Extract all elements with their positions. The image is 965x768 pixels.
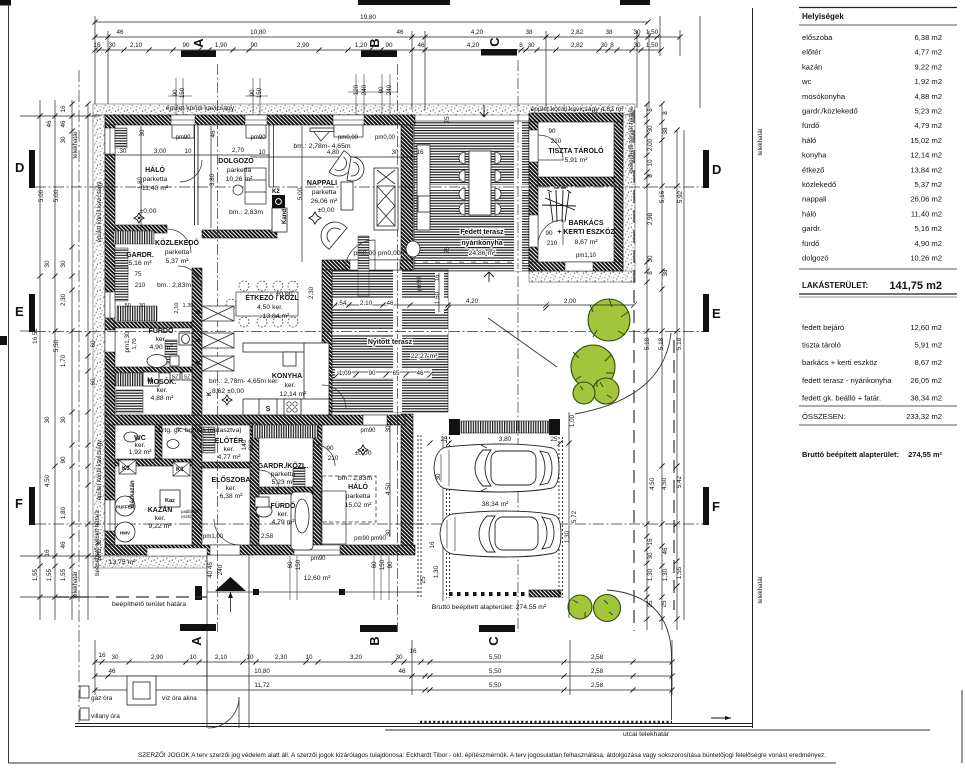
svg-text:2,58: 2,58 (591, 668, 604, 675)
svg-text:tiszta tároló: tiszta tároló (802, 341, 841, 350)
svg-text:240: 240 (361, 84, 368, 95)
svg-text:90: 90 (172, 89, 179, 97)
svg-text:pm1,30: pm1,30 (96, 539, 103, 561)
svg-text:K: K (196, 309, 202, 314)
svg-text:10,26 m2: 10,26 m2 (910, 254, 942, 263)
svg-text:HÁLÓ: HÁLÓ (145, 165, 165, 174)
svg-text:ker.: ker. (278, 511, 289, 518)
svg-text:30: 30 (395, 654, 403, 661)
svg-text:1,30: 1,30 (647, 568, 654, 581)
svg-text:BARKÁCS: BARKÁCS (569, 218, 604, 227)
svg-text:10,80: 10,80 (254, 668, 270, 675)
svg-text:2,30: 2,30 (60, 293, 67, 306)
svg-text:8: 8 (647, 174, 654, 178)
svg-text:2,10: 2,10 (174, 303, 180, 314)
svg-text:SZERZŐI JOGOK A terv szerzői j: SZERZŐI JOGOK A terv szerzői jog védelem… (138, 750, 826, 759)
svg-text:12,60 m²: 12,60 m² (304, 575, 332, 582)
svg-text:2,58: 2,58 (261, 533, 274, 540)
svg-text:.30: .30 (118, 148, 127, 155)
svg-text:MOSÓK.: MOSÓK. (148, 377, 176, 386)
svg-text:épület körüli kavicságy: épület körüli kavicságy (97, 182, 103, 242)
svg-text:8: 8 (662, 111, 669, 115)
svg-text:előszoba: előszoba (802, 33, 833, 42)
svg-text:ELŐTÉR: ELŐTÉR (215, 436, 243, 445)
svg-text:pm90 pm90: pm90 pm90 (354, 536, 386, 542)
svg-text:26,06 m2: 26,06 m2 (910, 195, 942, 204)
svg-text:46: 46 (662, 547, 669, 555)
svg-text:4,88 m²: 4,88 m² (150, 395, 174, 402)
svg-text:30: 30 (391, 149, 399, 156)
svg-text:30: 30 (385, 425, 392, 433)
svg-text:4,88 m2: 4,88 m2 (915, 92, 942, 101)
svg-text:nappali: nappali (802, 195, 827, 204)
svg-text:5,50: 5,50 (489, 654, 502, 661)
svg-text:C: C (487, 37, 502, 47)
svg-text:SZ: SZ (184, 375, 190, 381)
svg-text:90: 90 (249, 89, 256, 97)
svg-text:5,92: 5,92 (677, 190, 684, 203)
svg-text:WC: WC (134, 435, 146, 442)
svg-text:K: K (196, 360, 202, 365)
svg-text:16: 16 (93, 42, 101, 49)
svg-text:Gázkazán: Gázkazán (130, 480, 136, 508)
svg-text:2,98: 2,98 (647, 212, 654, 225)
svg-text:telekhatár: telekhatár (72, 571, 79, 598)
svg-text:11,40 m²: 11,40 m² (142, 185, 169, 192)
svg-text:pm0,00: pm0,00 (375, 135, 396, 141)
svg-text:3,80: 3,80 (209, 173, 216, 186)
svg-text:5,50: 5,50 (53, 339, 60, 352)
svg-text:1,30: 1,30 (433, 565, 440, 578)
svg-text:E: E (15, 304, 24, 319)
svg-text:12,14 m2: 12,14 m2 (910, 151, 942, 160)
svg-text:60: 60 (90, 378, 97, 386)
svg-text:D: D (15, 160, 24, 175)
svg-text:90: 90 (60, 456, 67, 464)
svg-text:fedett bejáró: fedett bejáró (802, 323, 844, 332)
svg-text:3,80: 3,80 (499, 436, 512, 443)
svg-text:Kaz: Kaz (165, 498, 175, 504)
svg-text:parketta: parketta (227, 167, 252, 174)
svg-text:141,75 m2: 141,75 m2 (889, 280, 942, 292)
svg-text:5,16: 5,16 (659, 190, 666, 203)
svg-text:6,38 m2: 6,38 m2 (915, 33, 942, 42)
svg-text:13,84 m²: 13,84 m² (263, 313, 291, 320)
svg-text:8,67 m²: 8,67 m² (574, 239, 598, 246)
svg-text:pm1,00: pm1,00 (203, 534, 224, 540)
svg-text:5,16 m2: 5,16 m2 (915, 224, 942, 233)
svg-text:1,60: 1,60 (434, 291, 441, 304)
svg-text:pm90: pm90 (175, 135, 191, 141)
svg-text:38,34 m2: 38,34 m2 (910, 393, 942, 402)
svg-text:pm1,10: pm1,10 (576, 253, 597, 259)
svg-text:16: 16 (416, 149, 424, 156)
svg-text:ker.: ker. (157, 387, 168, 394)
svg-text:38: 38 (525, 29, 533, 36)
svg-text:25: 25 (550, 436, 558, 443)
svg-text:2,00: 2,00 (564, 298, 577, 305)
svg-text:8: 8 (647, 108, 654, 112)
svg-text:,50: ,50 (123, 303, 131, 309)
svg-text:90: 90 (326, 445, 334, 452)
svg-text:10,80: 10,80 (250, 29, 266, 36)
svg-text:5,37 m2: 5,37 m2 (915, 180, 942, 189)
svg-text:épület körüli kavicságy: épület körüli kavicságy (166, 105, 235, 112)
svg-text:4,50: 4,50 (649, 477, 656, 490)
svg-text:5,91 m2: 5,91 m2 (915, 341, 942, 350)
svg-text:pm1,30: pm1,30 (124, 331, 131, 353)
svg-text:26,06 m²: 26,06 m² (311, 198, 339, 205)
svg-text:2,10: 2,10 (215, 654, 228, 661)
svg-text:30: 30 (60, 416, 67, 424)
svg-text:120: 120 (353, 84, 360, 95)
svg-text:háló: háló (802, 209, 816, 218)
svg-text:16: 16 (44, 549, 51, 557)
svg-text:5,50: 5,50 (489, 682, 502, 689)
svg-text:D: D (712, 162, 721, 177)
svg-text:HMV: HMV (120, 531, 131, 536)
svg-text:2,00: 2,00 (647, 138, 654, 151)
svg-text:1,80: 1,80 (137, 176, 144, 189)
svg-text:16: 16 (434, 274, 441, 282)
svg-text:6,38 m²: 6,38 m² (219, 493, 243, 500)
svg-text:Kand: Kand (282, 209, 288, 224)
svg-text:10,26 m²: 10,26 m² (226, 176, 254, 183)
svg-text:46: 46 (210, 130, 217, 138)
svg-text:16: 16 (60, 105, 67, 113)
svg-text:gardr./közlekedő: gardr./közlekedő (802, 107, 858, 116)
svg-text:Fedett terasz: Fedett terasz (460, 229, 504, 236)
svg-text:4,80: 4,80 (327, 149, 340, 156)
svg-text:1,92 m2: 1,92 m2 (915, 77, 942, 86)
svg-text:LAKÁSTERÜLET:: LAKÁSTERÜLET: (802, 281, 868, 290)
svg-text:65: 65 (392, 370, 400, 377)
svg-text:3,00: 3,00 (154, 148, 167, 155)
svg-text:12,60 m2: 12,60 m2 (910, 323, 942, 332)
svg-text:Bruttó beépített alapterület:: Bruttó beépített alapterület: (802, 450, 899, 459)
svg-text:parketta: parketta (312, 189, 337, 196)
svg-text:10: 10 (305, 654, 313, 661)
svg-text:46: 46 (396, 29, 404, 36)
svg-text:90: 90 (378, 86, 385, 94)
svg-text:közlekedő: közlekedő (802, 180, 836, 189)
svg-text:ker.: ker. (135, 442, 146, 449)
svg-text:pm0,00: pm0,00 (338, 135, 359, 141)
svg-text:fedett terasz - nyárikonyha: fedett terasz - nyárikonyha (802, 376, 892, 385)
svg-text:30: 30 (633, 29, 641, 36)
svg-text:25: 25 (440, 436, 448, 443)
svg-text:4,50: 4,50 (385, 482, 392, 495)
svg-text:.54: .54 (338, 300, 347, 307)
svg-text:1,90: 1,90 (215, 42, 228, 49)
svg-text:dolgozó: dolgozó (802, 254, 829, 263)
svg-text:90: 90 (387, 561, 394, 569)
svg-text:4,50 ker.: 4,50 ker. (257, 304, 283, 311)
svg-text:DOLGOZÓ: DOLGOZÓ (218, 156, 254, 165)
svg-text:46: 46 (417, 42, 425, 49)
svg-text:2,70: 2,70 (232, 147, 245, 154)
svg-text:mosókonyha: mosókonyha (802, 92, 846, 101)
svg-text:wc: wc (801, 77, 811, 86)
svg-text:2,58: 2,58 (591, 654, 604, 661)
svg-text:osztó: osztó (181, 514, 192, 519)
svg-text:1,92 m²: 1,92 m² (128, 449, 152, 456)
svg-text:B: B (367, 38, 382, 47)
svg-text:K3: K3 (122, 466, 130, 472)
svg-text:+ KERTI ESZKÖZ: + KERTI ESZKÖZ (557, 227, 615, 236)
svg-text:1,55: 1,55 (32, 568, 39, 581)
svg-text:1,09: 1,09 (339, 370, 352, 377)
svg-text:5,23 m2: 5,23 m2 (915, 107, 942, 116)
svg-text:4,50: 4,50 (661, 477, 668, 490)
svg-text:bm.: 2,78m- 4,65m: bm.: 2,78m- 4,65m (293, 143, 350, 150)
svg-text:barkács + kerti eszköz: barkács + kerti eszköz (802, 358, 878, 367)
svg-text:1,70: 1,70 (60, 354, 67, 367)
svg-text:épület körüli kavicságy: épület körüli kavicságy (97, 440, 103, 500)
svg-text:30: 30 (139, 129, 146, 137)
svg-text:A: A (191, 38, 206, 48)
svg-text:210: 210 (135, 282, 146, 289)
svg-text:8: 8 (610, 42, 614, 49)
svg-text:19,80: 19,80 (360, 14, 376, 21)
svg-text:10: 10 (189, 654, 197, 661)
svg-text:5,16 m²: 5,16 m² (128, 260, 152, 267)
svg-text:KÖZLEKEDŐ: KÖZLEKEDŐ (155, 238, 200, 247)
svg-text:60: 60 (287, 561, 294, 569)
svg-text:4,90 m2: 4,90 m2 (915, 239, 942, 248)
svg-text:F: F (15, 496, 23, 511)
svg-text:bm.: 2,78m- 4,65m ker.: bm.: 2,78m- 4,65m ker. (209, 378, 279, 385)
svg-text:parketta: parketta (143, 176, 168, 183)
svg-text:233,32 m2: 233,32 m2 (906, 412, 942, 421)
svg-text:1,50: 1,50 (646, 42, 659, 49)
svg-text:46: 46 (386, 300, 394, 307)
svg-text:4,90 m²: 4,90 m² (149, 344, 173, 351)
svg-text:16,52: 16,52 (32, 328, 39, 344)
svg-text:KAZÁN: KAZÁN (148, 505, 173, 514)
svg-text:10: 10 (184, 148, 192, 155)
svg-text:fürdő: fürdő (802, 239, 819, 248)
svg-text:30: 30 (600, 42, 608, 49)
svg-text:38: 38 (662, 127, 669, 135)
svg-text:gáz óra: gáz óra (91, 695, 113, 702)
svg-text:46: 46 (60, 541, 67, 549)
svg-text:parketta: parketta (165, 249, 190, 256)
svg-text:pm90: pm90 (250, 135, 266, 141)
svg-text:46: 46 (60, 120, 67, 128)
svg-text:30: 30 (647, 125, 654, 133)
svg-text:46: 46 (116, 29, 124, 36)
svg-text:274,55 m²: 274,55 m² (908, 450, 942, 459)
svg-text:30: 30 (60, 260, 67, 268)
svg-text:FÜRDŐ: FÜRDŐ (271, 501, 296, 510)
svg-text:K2: K2 (272, 189, 280, 195)
svg-text:kazán: kazán (802, 62, 822, 71)
svg-text:K1: K1 (176, 467, 184, 473)
svg-text:5,18: 5,18 (644, 337, 651, 350)
svg-text:60: 60 (371, 561, 378, 569)
svg-text:5,50: 5,50 (489, 668, 502, 675)
svg-text:75: 75 (444, 246, 451, 254)
svg-text:150: 150 (379, 559, 386, 570)
svg-text:8: 8 (647, 271, 654, 275)
svg-text:5,23 m²: 5,23 m² (271, 479, 295, 486)
svg-text:26,05 m2: 26,05 m2 (910, 376, 942, 385)
svg-text:10: 10 (258, 149, 266, 156)
svg-text:±0,00: ±0,00 (318, 207, 335, 214)
svg-text:5,72: 5,72 (571, 510, 578, 523)
svg-text:5,91 m²: 5,91 m² (564, 157, 588, 164)
svg-text:5,18: 5,18 (658, 337, 665, 350)
svg-text:1,30: 1,30 (564, 530, 571, 543)
svg-text:10: 10 (246, 654, 254, 661)
svg-text:1,80: 1,80 (60, 506, 67, 519)
svg-text:2,10: 2,10 (360, 300, 373, 307)
svg-text:8,62 ±0,00: 8,62 ±0,00 (212, 388, 244, 395)
svg-text:22,27 m²: 22,27 m² (411, 353, 439, 360)
svg-text:fürdő: fürdő (802, 121, 819, 130)
svg-text:4,79 m2: 4,79 m2 (915, 121, 942, 130)
svg-text:pm90: pm90 (310, 556, 326, 562)
svg-text:15,02 m2: 15,02 m2 (910, 136, 942, 145)
svg-text:90: 90 (385, 42, 393, 49)
svg-text:1,55: 1,55 (676, 566, 683, 579)
svg-text:30: 30 (435, 473, 442, 481)
svg-text:11,40 m2: 11,40 m2 (911, 209, 942, 218)
svg-text:90: 90 (182, 42, 190, 49)
svg-text:140: 140 (241, 439, 248, 450)
svg-text:75: 75 (444, 116, 451, 124)
svg-text:HÁLÓ: HÁLÓ (348, 482, 368, 491)
svg-text:1,30: 1,30 (662, 568, 669, 581)
svg-text:2 rtg. gk. borítás (radasztva): 2 rtg. gk. borítás (radasztva) (157, 427, 242, 434)
svg-text:4,77 m²: 4,77 m² (217, 454, 241, 461)
svg-text:bm.: 2,83m: bm.: 2,83m (157, 282, 191, 289)
svg-text:2,30: 2,30 (308, 286, 315, 299)
svg-text:90: 90 (545, 230, 553, 237)
svg-text:46: 46 (46, 120, 53, 128)
svg-text:F: F (712, 499, 720, 514)
svg-text:13,75 m²: 13,75 m² (109, 559, 137, 566)
svg-text:ELŐSZOBA: ELŐSZOBA (212, 475, 251, 484)
svg-text:épület körüli kavicságy 4,82: épület körüli kavicságy 4,82 m² (530, 106, 624, 113)
svg-text:16: 16 (409, 648, 417, 655)
svg-text:4,20: 4,20 (467, 42, 480, 49)
svg-text:9,22 m2: 9,22 m2 (915, 62, 942, 71)
svg-text:A: A (189, 636, 204, 646)
svg-text:parketta: parketta (346, 493, 371, 500)
svg-text:Helyiségek: Helyiségek (802, 12, 844, 21)
svg-text:25: 25 (661, 600, 668, 608)
svg-text:2,82: 2,82 (571, 29, 584, 36)
svg-text:30: 30 (647, 255, 654, 263)
svg-text:K: K (196, 337, 202, 342)
svg-text:46: 46 (398, 668, 406, 675)
svg-text:16: 16 (429, 541, 436, 549)
svg-text:FÜRDŐ: FÜRDŐ (149, 326, 174, 335)
svg-text:2,90: 2,90 (297, 42, 310, 49)
svg-text:utcai telekhatár: utcai telekhatár (623, 731, 670, 738)
svg-text:30: 30 (633, 42, 641, 49)
svg-text:150: 150 (179, 87, 186, 98)
svg-text:1,55: 1,55 (60, 568, 67, 581)
svg-text:K: K (207, 391, 213, 396)
svg-text:4,50: 4,50 (44, 474, 51, 487)
svg-text:38: 38 (605, 29, 613, 36)
svg-text:telekhatár: telekhatár (72, 131, 79, 158)
svg-text:1,70: 1,70 (132, 339, 138, 350)
svg-text:GARDR.: GARDR. (126, 252, 154, 259)
svg-text:1,50: 1,50 (646, 29, 659, 36)
svg-text:30: 30 (111, 654, 119, 661)
svg-text:16: 16 (98, 652, 106, 659)
svg-text:5,00: 5,00 (53, 189, 60, 202)
svg-text:étkező: étkező (802, 165, 824, 174)
svg-text:Bruttó beépített alapterület:: Bruttó beépített alapterület: 274,55 m² (432, 604, 547, 611)
svg-text:5,42: 5,42 (676, 475, 683, 488)
svg-text:4,20: 4,20 (466, 298, 479, 305)
svg-text:ker.: ker. (226, 485, 237, 492)
svg-text:90: 90 (368, 370, 376, 377)
svg-text:2,82: 2,82 (571, 42, 584, 49)
svg-text:villany óra: villany óra (91, 713, 120, 720)
svg-text:pm0,00 pm0,00: pm0,00 pm0,00 (353, 250, 400, 257)
svg-text:ker.: ker. (155, 515, 166, 522)
svg-text:NAPPALI: NAPPALI (307, 180, 337, 187)
svg-text:beépíthető terület határa: beépíthető terület határa (629, 107, 635, 173)
svg-text:beépíthető terület határa: beépíthető terület határa (112, 601, 186, 608)
svg-text:ker.: ker. (224, 446, 235, 453)
svg-text:ÖSSZESEN:: ÖSSZESEN: (802, 412, 845, 421)
svg-text:bm.: 2,83m: bm.: 2,83m (229, 209, 263, 216)
svg-text:TISZTA TÁROLÓ: TISZTA TÁROLÓ (548, 146, 604, 155)
svg-text:±0,00: ±0,00 (140, 208, 157, 215)
svg-text:25: 25 (647, 600, 654, 608)
svg-text:30: 30 (385, 529, 392, 537)
svg-text:210: 210 (547, 240, 558, 247)
svg-text:3,20: 3,20 (350, 654, 363, 661)
svg-text:GARDR./KÖZL.: GARDR./KÖZL. (258, 461, 309, 470)
svg-text:25: 25 (420, 576, 427, 584)
svg-text:40 46: 40 46 (207, 562, 214, 578)
svg-text:telekhatár: telekhatár (757, 576, 764, 603)
svg-text:46: 46 (108, 668, 116, 675)
svg-text:2,30: 2,30 (275, 654, 288, 661)
svg-text:38,34 m²: 38,34 m² (482, 501, 510, 508)
svg-text:16: 16 (647, 538, 654, 546)
svg-text:12,14 m²: 12,14 m² (280, 391, 308, 398)
svg-text:pm90: pm90 (417, 276, 423, 292)
svg-text:2,58: 2,58 (591, 682, 604, 689)
svg-text:B: B (367, 636, 382, 645)
svg-text:30: 30 (44, 260, 51, 268)
svg-text:240: 240 (217, 564, 224, 575)
svg-text:30: 30 (108, 42, 116, 49)
svg-text:8,67 m2: 8,67 m2 (915, 358, 942, 367)
svg-text:víz óra akna: víz óra akna (162, 695, 197, 702)
svg-text:±0,00: ±0,00 (276, 291, 293, 298)
svg-text:5,00: 5,00 (297, 187, 304, 200)
svg-text:2,10: 2,10 (130, 42, 143, 49)
svg-text:előtér: előtér (802, 48, 821, 57)
svg-text:5,00: 5,00 (38, 189, 45, 202)
svg-text:210: 210 (328, 455, 339, 462)
svg-text:13,84 m2: 13,84 m2 (910, 165, 942, 174)
svg-text:46: 46 (416, 370, 424, 377)
svg-text:240: 240 (386, 84, 393, 95)
svg-text:15,02 m²: 15,02 m² (345, 502, 373, 509)
svg-text:1,00: 1,00 (569, 414, 576, 427)
